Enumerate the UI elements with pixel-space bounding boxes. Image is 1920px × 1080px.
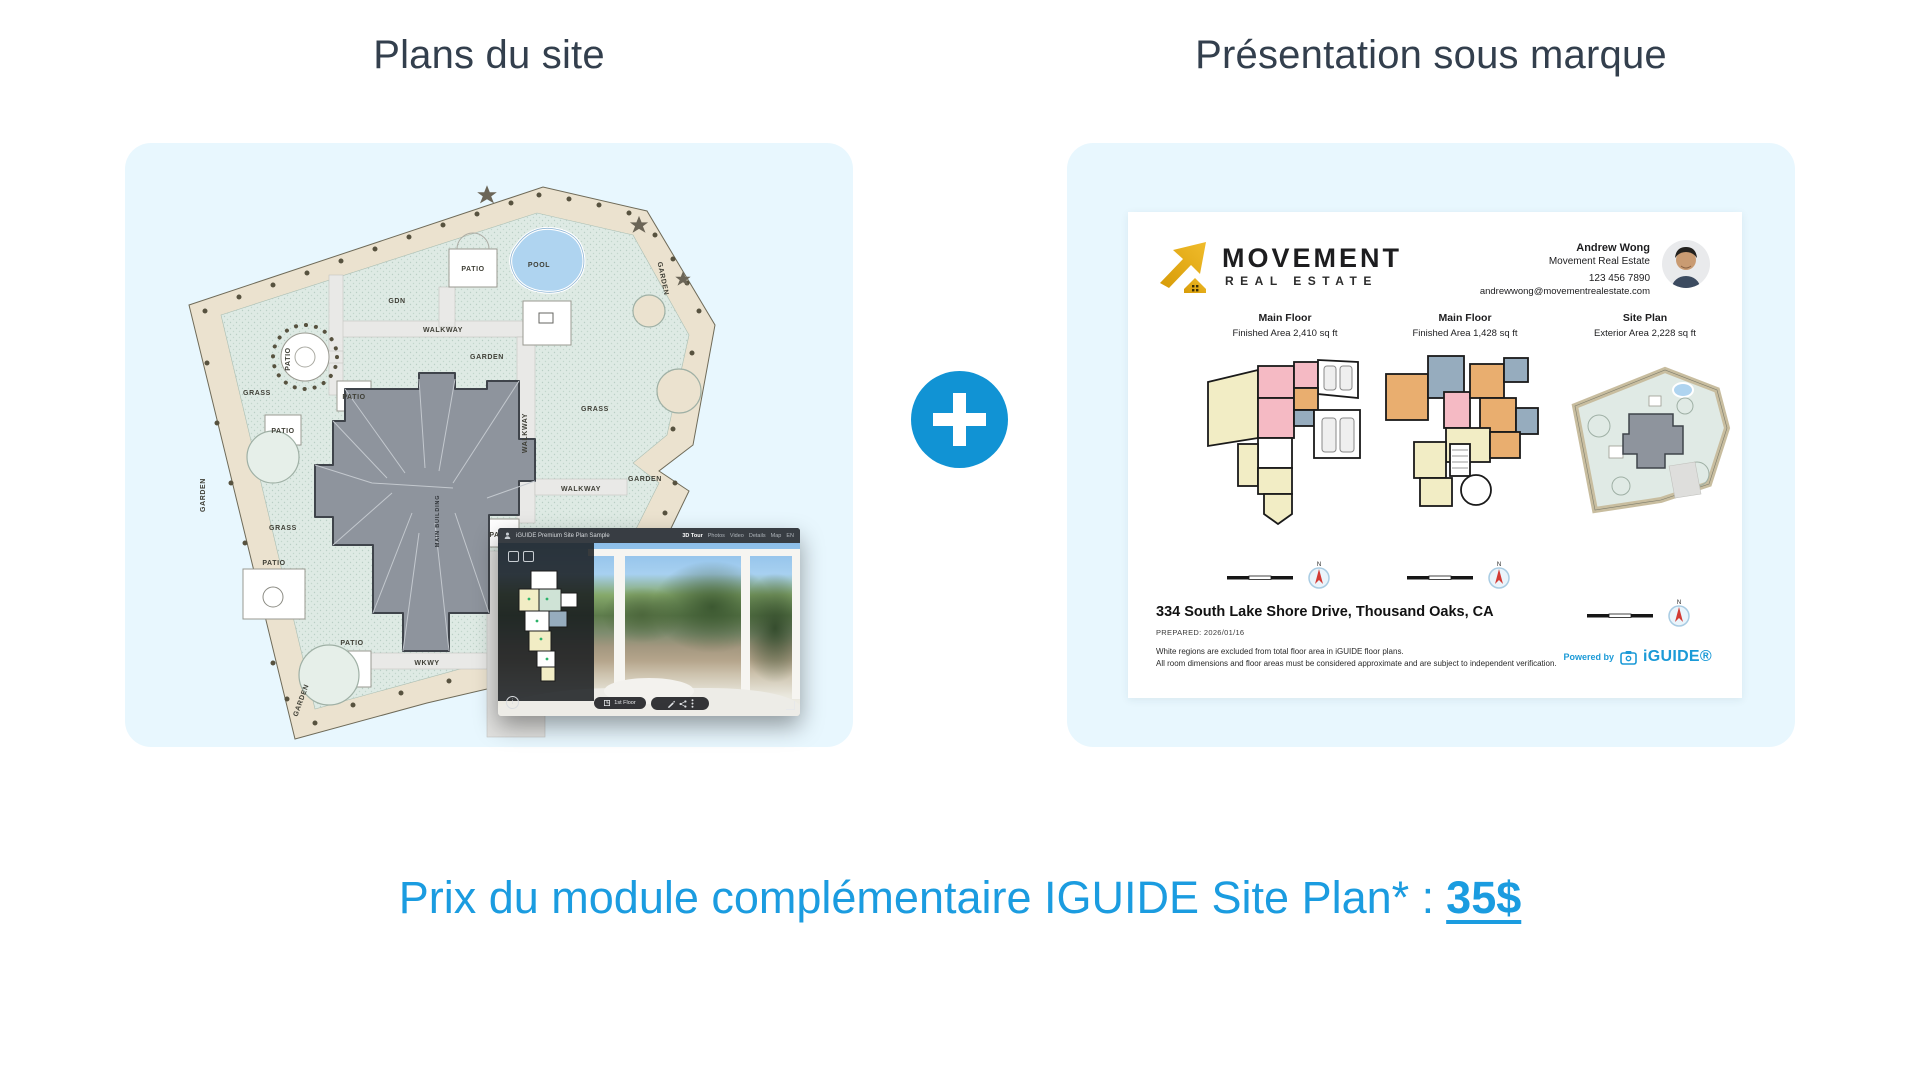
svg-text:GARDEN: GARDEN (200, 478, 207, 512)
plan-column-3-header: Site Plan Exterior Area 2,228 sq ft (1555, 312, 1735, 339)
prepared-date: PREPARED: 2026/01/16 (1156, 628, 1244, 637)
floor-plan-main-1 (1200, 348, 1370, 548)
plan-column-title: Site Plan (1555, 312, 1735, 324)
powered-by: Powered by iGUIDE® (1563, 648, 1712, 666)
price-text: Prix du module complémentaire IGUIDE Sit… (399, 872, 1434, 923)
pool (511, 228, 584, 292)
movement-logo-icon (1156, 237, 1214, 293)
svg-text:GARDEN: GARDEN (628, 476, 662, 483)
site-plan-card: POOL PATIO GARDEN WALKWAY GARDEN GDN GRA… (125, 143, 853, 747)
branded-presentation-card: MOVEMENT REAL ESTATE Andrew Wong Movemen… (1067, 143, 1795, 747)
grid-view-icon[interactable] (508, 551, 519, 562)
plan-column-title: Main Floor (1195, 312, 1375, 324)
brand-name: MOVEMENT (1222, 243, 1402, 274)
svg-text:WALKWAY: WALKWAY (522, 413, 529, 453)
tour-nav-language[interactable]: EN (786, 533, 794, 539)
tour-viewer-overlay: iGUIDE Premium Site Plan Sample 3D Tour … (498, 528, 800, 716)
right-section-title: Présentation sous marque (1067, 30, 1795, 80)
svg-text:POOL: POOL (528, 262, 550, 269)
plan-column-subtitle: Finished Area 2,410 sq ft (1195, 328, 1375, 339)
svg-text:PATIO: PATIO (271, 428, 294, 435)
svg-text:GDN: GDN (388, 298, 405, 305)
tour-nav-map[interactable]: Map (771, 533, 782, 539)
window-frame (741, 549, 750, 699)
kebab-menu-icon[interactable] (691, 699, 694, 708)
tour-floorplan-panel (498, 543, 594, 701)
plan-column-title: Main Floor (1375, 312, 1555, 324)
fullscreen-corner-icon[interactable] (786, 701, 795, 710)
agent-info: Andrew Wong Movement Real Estate 123 456… (1480, 242, 1650, 297)
svg-text:GRASS: GRASS (243, 390, 271, 397)
svg-text:GRASS: GRASS (269, 525, 297, 532)
tour-top-bar: iGUIDE Premium Site Plan Sample 3D Tour … (498, 528, 800, 543)
brand-subtitle: REAL ESTATE (1225, 274, 1378, 288)
svg-text:GARDEN: GARDEN (470, 354, 504, 361)
plus-icon (911, 371, 1008, 468)
info-icon[interactable]: i (506, 696, 519, 709)
presentation-page: MOVEMENT REAL ESTATE Andrew Wong Movemen… (1128, 212, 1742, 698)
svg-text:GRASS: GRASS (581, 406, 609, 413)
scale-and-compass: N (1403, 558, 1527, 592)
site-plan-mini (1565, 362, 1735, 522)
svg-text:WKWY: WKWY (414, 660, 439, 667)
plan-column-subtitle: Finished Area 1,428 sq ft (1375, 328, 1555, 339)
page: Plans du site Présentation sous marque (0, 0, 1920, 1080)
agent-company: Movement Real Estate (1480, 256, 1650, 267)
disclaimer-line-2: All room dimensions and floor areas must… (1156, 658, 1557, 670)
svg-text:PATIO: PATIO (342, 394, 365, 401)
agent-name: Andrew Wong (1480, 242, 1650, 254)
tour-title: iGUIDE Premium Site Plan Sample (516, 533, 610, 539)
measure-pencil-icon[interactable] (667, 700, 675, 708)
property-address: 334 South Lake Shore Drive, Thousand Oak… (1156, 604, 1494, 620)
plan-column-subtitle: Exterior Area 2,228 sq ft (1555, 328, 1735, 339)
left-section-title: Plans du site (125, 30, 853, 80)
minimap-floor-plan[interactable] (511, 569, 581, 687)
agent-email: andrewwong@movementrealestate.com (1480, 286, 1650, 297)
svg-text:MAIN BUILDING: MAIN BUILDING (435, 495, 441, 548)
svg-text:PATIO: PATIO (262, 560, 285, 567)
svg-text:PATIO: PATIO (461, 266, 484, 273)
window-frame (792, 549, 800, 699)
svg-text:N: N (1677, 600, 1681, 606)
price-value-link[interactable]: 35$ (1446, 872, 1521, 923)
scale-and-compass: N (1583, 596, 1707, 630)
plan-column-1-header: Main Floor Finished Area 2,410 sq ft (1195, 312, 1375, 339)
floor-pill-label: 1st Floor (614, 700, 635, 706)
plan-column-2-header: Main Floor Finished Area 1,428 sq ft (1375, 312, 1555, 339)
powered-by-label: Powered by (1563, 652, 1614, 662)
share-icon[interactable] (679, 700, 687, 708)
tour-nav-video[interactable]: Video (730, 533, 744, 539)
person-icon (504, 532, 511, 539)
svg-text:PATIO: PATIO (285, 347, 292, 370)
tour-tools-pill[interactable] (651, 697, 709, 710)
price-line: Prix du module complémentaire IGUIDE Sit… (0, 872, 1920, 924)
agent-avatar (1662, 240, 1710, 288)
svg-text:N: N (1497, 562, 1501, 568)
tour-nav-photos[interactable]: Photos (708, 533, 725, 539)
agent-phone: 123 456 7890 (1480, 273, 1650, 284)
iguide-wordmark: iGUIDE® (1643, 648, 1712, 666)
window-frame (614, 549, 625, 699)
svg-text:N: N (1317, 562, 1321, 568)
svg-text:WALKWAY: WALKWAY (423, 327, 463, 334)
tour-nav-3d-tour[interactable]: 3D Tour (682, 533, 702, 539)
disclaimer-line-1: White regions are excluded from total fl… (1156, 646, 1557, 658)
floor-plan-main-2 (1380, 348, 1550, 548)
scale-and-compass: N (1223, 558, 1347, 592)
floor-selector-pill[interactable]: 1st Floor (594, 697, 646, 709)
iguide-icon (1620, 650, 1637, 665)
svg-text:PATIO: PATIO (340, 640, 363, 647)
svg-text:WALKWAY: WALKWAY (561, 486, 601, 493)
disclaimer: White regions are excluded from total fl… (1156, 646, 1557, 670)
expand-icon[interactable] (523, 551, 534, 562)
tour-nav-details[interactable]: Details (749, 533, 766, 539)
floorplan-icon (604, 700, 610, 706)
